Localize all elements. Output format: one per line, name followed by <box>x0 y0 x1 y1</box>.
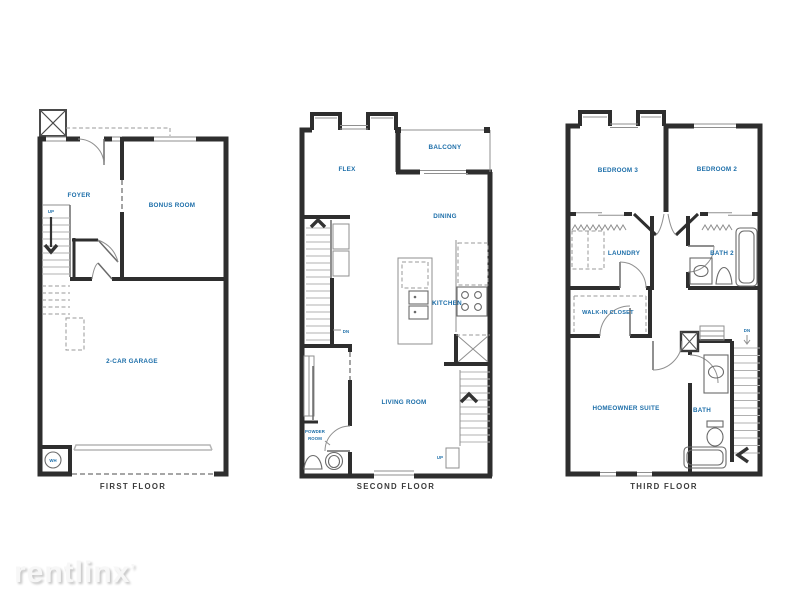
up-label: UP <box>48 209 54 214</box>
garage-door <box>74 445 212 450</box>
dn-label: DN <box>343 329 349 334</box>
wh-label: WH <box>49 458 56 463</box>
rentlinx-watermark-mark: ʼ <box>130 562 135 579</box>
room-label-flex: FLEX <box>338 166 356 173</box>
room-label-laundry: LAUNDRY <box>608 250 641 257</box>
floor-plan-image: UP WH FOYER BONUS ROOM 2-CAR GARAGE FIRS… <box>0 0 800 600</box>
room-label-garage: 2-CAR GARAGE <box>106 358 158 365</box>
bedroom2-door <box>668 214 698 235</box>
floor-plans-svg: UP WH FOYER BONUS ROOM 2-CAR GARAGE FIRS… <box>0 0 800 600</box>
third-floor-plan: DN BEDROOM 3 BEDROOM 2 LAUNDRY BATH 2 WA… <box>566 112 763 491</box>
laundry-shelf-symbol <box>572 225 626 230</box>
room-label-kitchen: KITCHEN <box>432 300 462 307</box>
room-label-homeowner-suite: HOMEOWNER SUITE <box>592 405 659 412</box>
second-floor-stairs-up: UP <box>437 364 490 468</box>
coat-closet <box>304 356 314 420</box>
room-label-foyer: FOYER <box>68 192 91 199</box>
toilet-symbol <box>707 421 723 427</box>
room-label-dining: DINING <box>433 213 457 220</box>
first-floor-interior-walls <box>70 137 226 281</box>
laundry-room <box>572 231 646 288</box>
bath2-shelf-symbol <box>702 225 732 230</box>
chase-symbol <box>681 332 698 351</box>
first-floor-plan: UP WH FOYER BONUS ROOM 2-CAR GARAGE FIRS… <box>38 110 229 491</box>
pantry <box>454 334 490 364</box>
rentlinx-watermark: rentlinxʼ <box>14 556 136 590</box>
second-floor-plan: BALCONY DN <box>300 114 493 491</box>
room-label-bedroom3: BEDROOM 3 <box>598 167 639 174</box>
second-floor-exterior-walls <box>300 114 493 477</box>
linen-niche <box>700 326 724 340</box>
up-label: UP <box>437 455 443 460</box>
third-floor-caption: THIRD FLOOR <box>630 482 698 491</box>
garage-entry-door <box>92 263 112 279</box>
powder-room: POWDER ROOM <box>304 426 350 470</box>
kitchen-island <box>398 258 432 344</box>
bath2-room <box>688 228 757 286</box>
toilet-symbol <box>716 268 732 285</box>
room-label-living-room: LIVING ROOM <box>381 399 426 406</box>
dn-label: DN <box>744 328 750 333</box>
room-label-balcony: BALCONY <box>429 144 462 151</box>
room-label-bedroom2: BEDROOM 2 <box>697 166 738 173</box>
washer-dryer-symbol <box>572 231 604 269</box>
room-label-bath: BATH <box>693 407 711 414</box>
second-floor-caption: SECOND FLOOR <box>357 482 435 491</box>
bedroom3-door <box>634 214 664 235</box>
room-label-walk-in-closet: WALK-IN CLOSET <box>582 310 634 316</box>
room-label-bonus-room: BONUS ROOM <box>149 202 196 209</box>
second-floor-stairs-down: DN <box>306 220 349 340</box>
walk-in-closet <box>574 296 646 336</box>
room-label-bath2: BATH 2 <box>710 250 734 257</box>
third-floor-interior-walls <box>568 124 762 474</box>
room-label-powder1: POWDER <box>305 429 326 434</box>
rentlinx-watermark-text: rentlinx <box>14 556 130 589</box>
third-floor-stairs-down: DN <box>734 328 760 462</box>
understair-closet-door <box>98 240 118 262</box>
balcony-railing: BALCONY <box>395 127 490 172</box>
water-heater-symbol: WH <box>45 452 61 468</box>
kitchen-counter <box>456 240 488 332</box>
porch-column-symbol <box>40 110 170 136</box>
suite-entry-door <box>653 341 682 370</box>
first-floor-caption: FIRST FLOOR <box>100 482 166 491</box>
toilet-symbol <box>304 456 322 470</box>
entry-door <box>78 139 104 165</box>
first-floor-exterior-walls <box>38 137 229 477</box>
room-label-powder2: ROOM <box>308 436 322 441</box>
